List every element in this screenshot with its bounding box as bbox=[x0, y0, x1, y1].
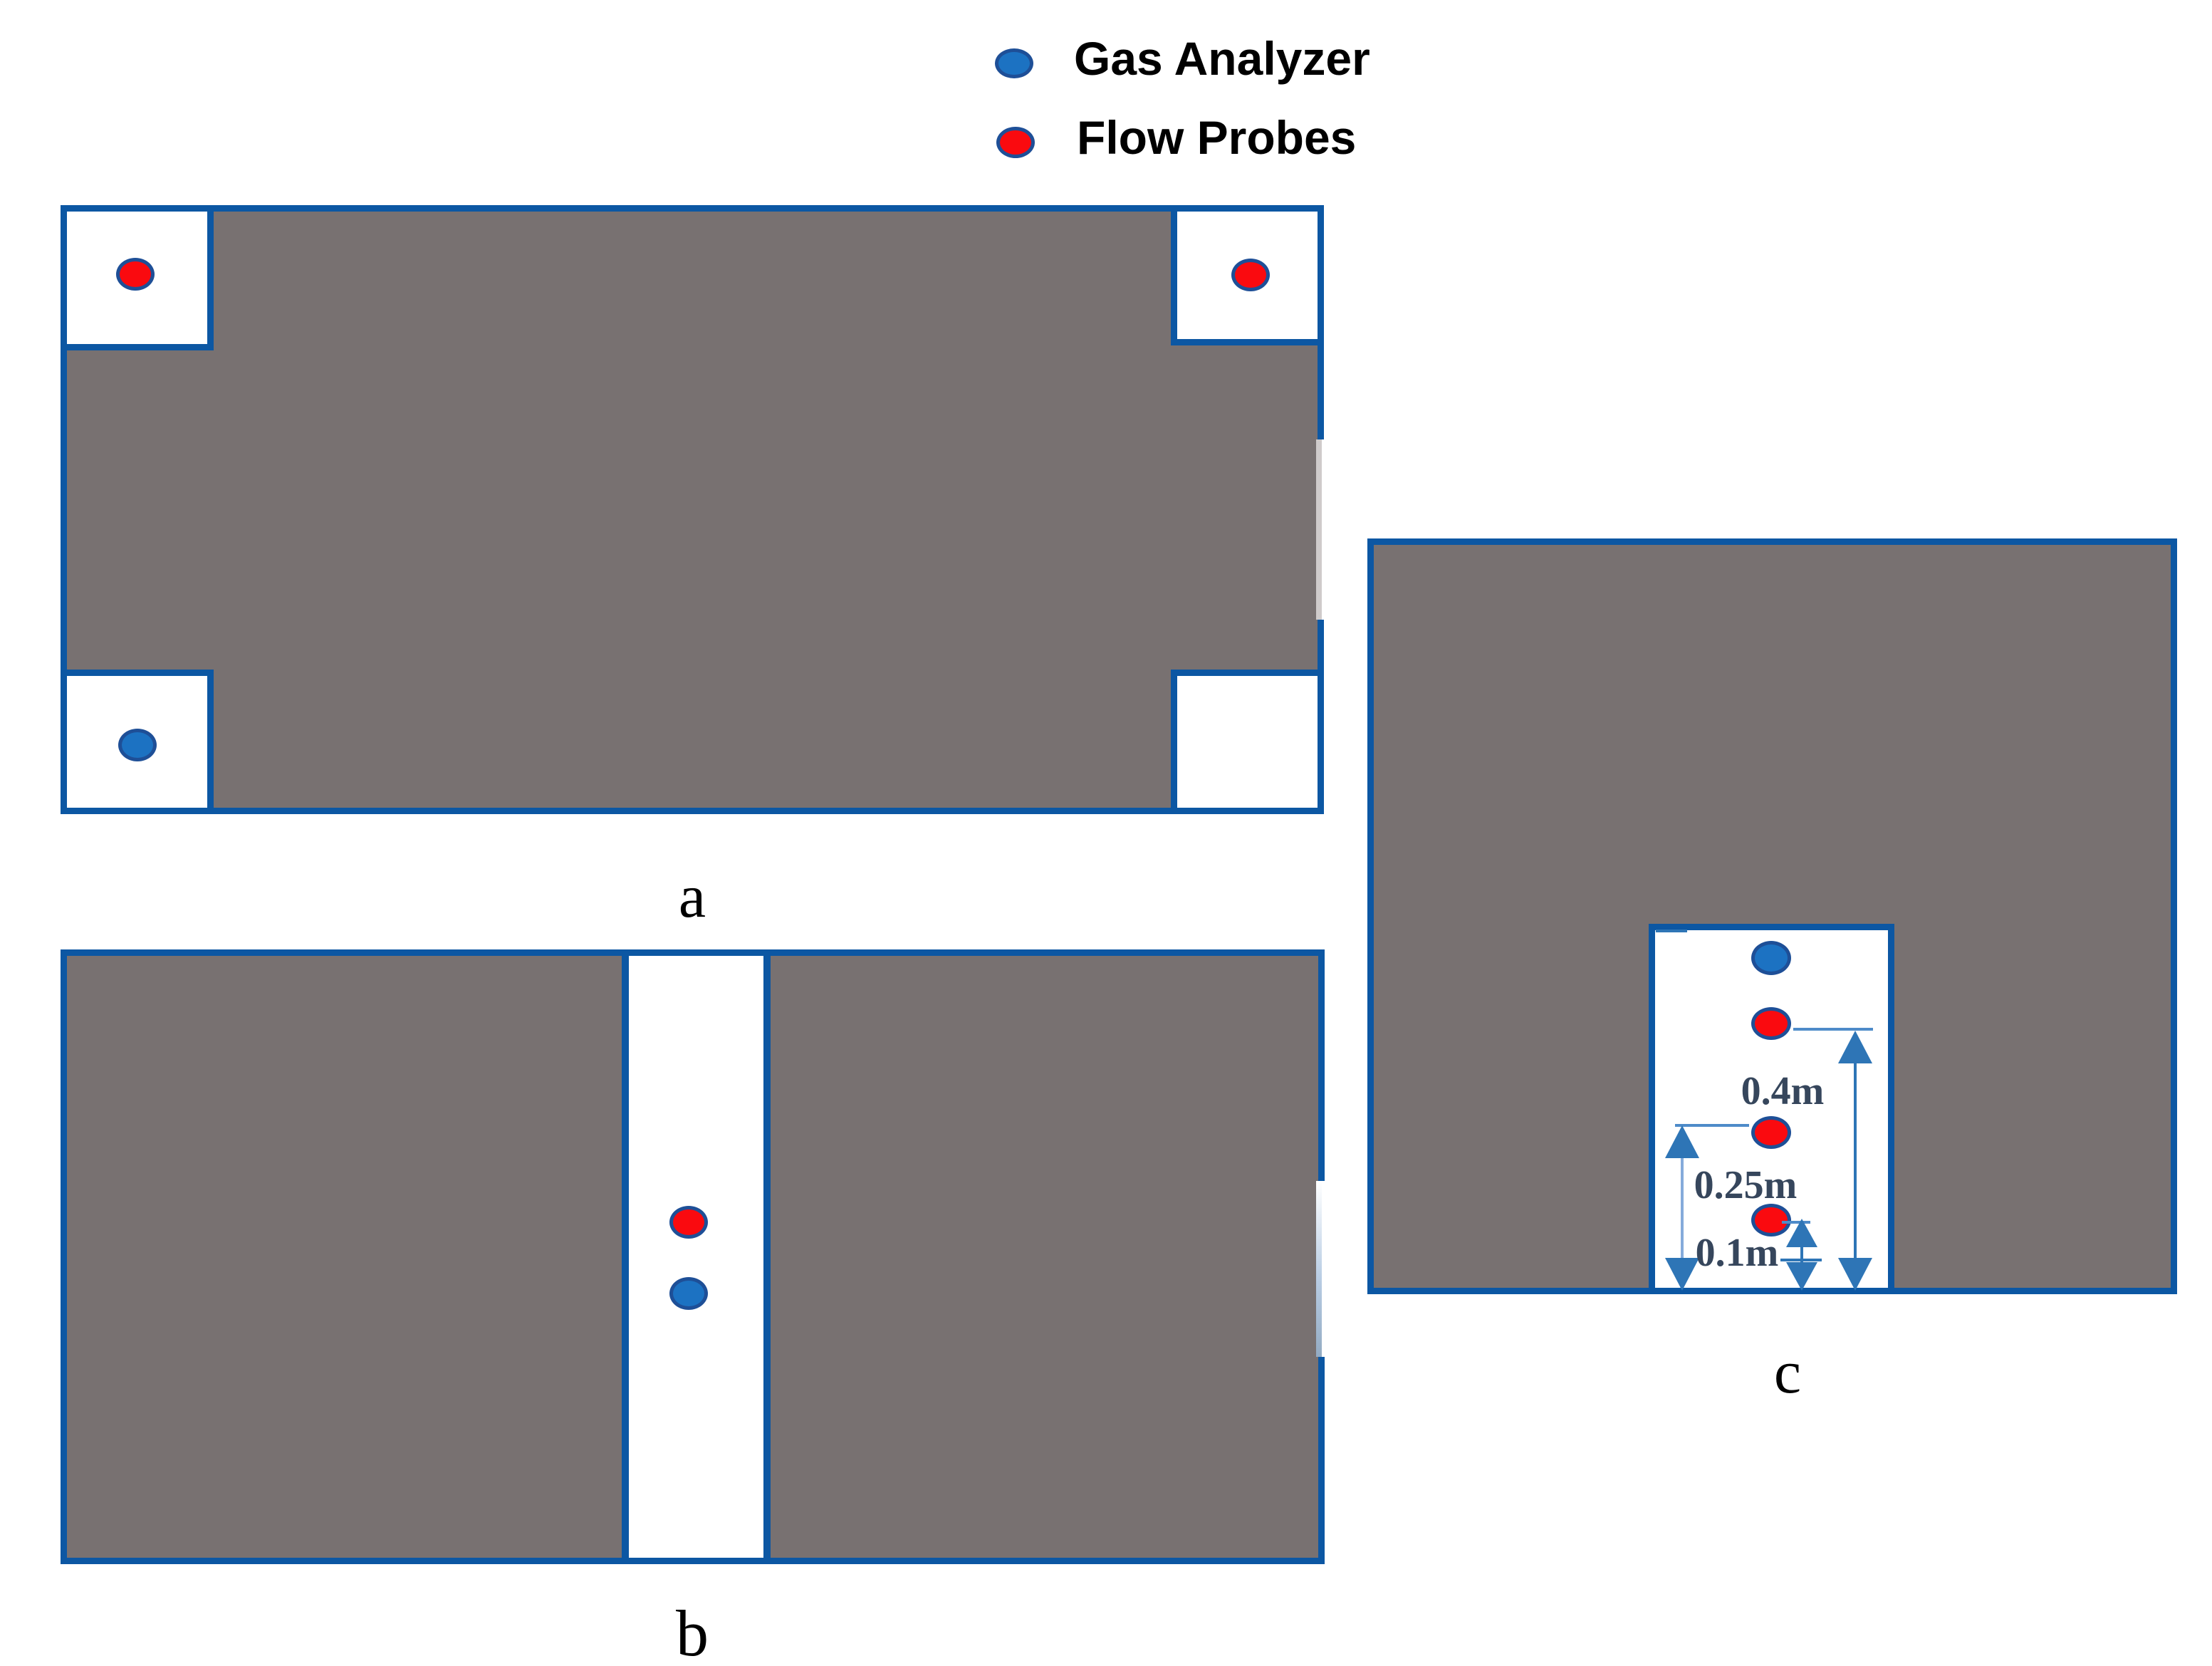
figure-canvas: Gas Analyzer Flow Probes a b 0.4m bbox=[0, 0, 2212, 1666]
panel-c-label: c bbox=[1716, 1331, 1859, 1412]
panel-a-label: a bbox=[621, 855, 763, 937]
panel-b-label: b bbox=[621, 1592, 763, 1666]
legend-gas-analyzer-label: Gas Analyzer bbox=[1074, 26, 1515, 90]
dim-0p4m-arrow-down-icon bbox=[1838, 1258, 1872, 1291]
flow-probe-marker-a-top-left bbox=[116, 258, 155, 291]
panel-b-door-edge bbox=[1316, 1181, 1322, 1357]
panel-b-corridor bbox=[622, 956, 771, 1558]
flow-probe-marker-b-corridor bbox=[669, 1206, 708, 1239]
flow-probe-legend-icon bbox=[996, 127, 1035, 158]
dim-0p4m-label: 0.4m bbox=[1711, 1070, 1854, 1113]
gas-analyzer-marker-a-bottom-left bbox=[118, 729, 157, 761]
panel-a-door-edge bbox=[1316, 439, 1322, 620]
dim-0p4m-arrow-up-icon bbox=[1838, 1031, 1872, 1063]
legend-flow-probes-label: Flow Probes bbox=[1077, 105, 1518, 170]
panel-b-door-opening bbox=[1309, 1181, 1316, 1357]
dim-0p25m-arrow-up-icon bbox=[1665, 1125, 1699, 1158]
panel-a-room bbox=[61, 205, 1324, 814]
panel-a-door-opening bbox=[1309, 439, 1316, 620]
flow-probe-marker-c-0p4m bbox=[1751, 1007, 1791, 1040]
flow-probe-marker-a-top-right bbox=[1231, 259, 1270, 291]
gas-analyzer-legend-icon bbox=[995, 48, 1033, 78]
panel-a-door-gap bbox=[1322, 439, 1327, 620]
dim-0p1m-label: 0.1m bbox=[1666, 1232, 1808, 1274]
panel-a-corner-bottom-right bbox=[1171, 670, 1324, 814]
dim-0p4m-line bbox=[1854, 1041, 1857, 1282]
panel-b-door-gap bbox=[1322, 1181, 1327, 1357]
panel-c-doorway-top-tick bbox=[1656, 930, 1687, 932]
gas-analyzer-marker-b-corridor bbox=[669, 1277, 708, 1310]
gas-analyzer-marker-c bbox=[1751, 941, 1791, 975]
flow-probe-marker-c-0p25m bbox=[1751, 1116, 1791, 1149]
dim-0p25m-label: 0.25m bbox=[1667, 1164, 1824, 1207]
